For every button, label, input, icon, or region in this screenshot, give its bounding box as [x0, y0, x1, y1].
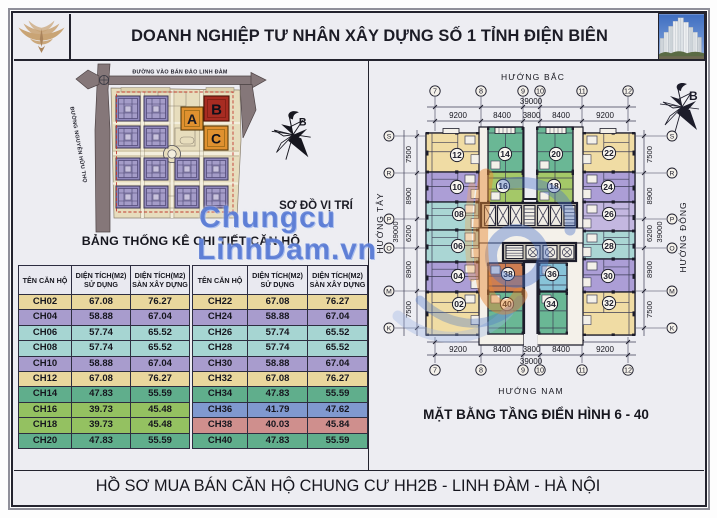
svg-text:7500: 7500 [645, 301, 654, 318]
svg-text:P: P [670, 216, 675, 223]
svg-text:8: 8 [479, 87, 483, 96]
svg-text:9: 9 [521, 87, 525, 96]
svg-text:6200: 6200 [645, 225, 654, 242]
svg-text:12: 12 [624, 87, 632, 96]
svg-text:3800: 3800 [523, 111, 541, 120]
svg-text:S: S [670, 133, 675, 140]
svg-text:26: 26 [604, 209, 614, 219]
svg-text:ĐƯỜNG VÀO BÁN ĐẢO LINH ĐÀM: ĐƯỜNG VÀO BÁN ĐẢO LINH ĐÀM [132, 68, 227, 76]
svg-text:10: 10 [536, 366, 544, 375]
svg-text:8900: 8900 [645, 188, 654, 205]
svg-text:A: A [187, 111, 197, 127]
svg-text:K: K [670, 325, 675, 332]
svg-text:8: 8 [479, 366, 483, 375]
svg-text:B: B [211, 102, 222, 119]
svg-text:HƯỚNG ĐÔNG: HƯỚNG ĐÔNG [678, 201, 688, 272]
svg-text:O: O [669, 245, 674, 252]
svg-text:20: 20 [551, 149, 561, 159]
svg-text:ĐƯỜNG NGUYỄN HỮU THỌ: ĐƯỜNG NGUYỄN HỮU THỌ [68, 106, 89, 183]
svg-text:HƯỚNG NAM: HƯỚNG NAM [498, 386, 564, 396]
svg-text:8400: 8400 [552, 111, 570, 120]
svg-text:7500: 7500 [645, 146, 654, 163]
svg-text:B: B [689, 89, 698, 103]
svg-text:7: 7 [433, 366, 437, 375]
svg-text:12: 12 [452, 150, 462, 160]
svg-text:8400: 8400 [493, 111, 511, 120]
svg-text:9: 9 [521, 366, 525, 375]
svg-text:12: 12 [624, 366, 632, 375]
svg-text:24: 24 [603, 182, 613, 192]
svg-text:8900: 8900 [645, 261, 654, 278]
svg-text:30: 30 [603, 271, 613, 281]
svg-text:9200: 9200 [449, 111, 467, 120]
svg-text:32: 32 [604, 298, 614, 308]
svg-text:MẶT BẰNG TẦNG ĐIỂN HÌNH 6 - 40: MẶT BẰNG TẦNG ĐIỂN HÌNH 6 - 40 [423, 407, 649, 422]
svg-text:10: 10 [536, 87, 544, 96]
svg-text:11: 11 [578, 87, 585, 96]
svg-text:9200: 9200 [596, 111, 614, 120]
svg-text:39000: 39000 [520, 97, 543, 106]
svg-text:7: 7 [433, 87, 437, 96]
svg-text:22: 22 [604, 148, 614, 158]
svg-text:28: 28 [604, 241, 614, 251]
svg-text:9200: 9200 [596, 345, 614, 354]
svg-text:C: C [211, 131, 221, 147]
svg-text:M: M [669, 288, 675, 295]
svg-text:14: 14 [500, 149, 510, 159]
svg-text:HƯỚNG BẮC: HƯỚNG BẮC [501, 72, 565, 82]
svg-text:B: B [299, 116, 307, 128]
svg-text:R: R [670, 170, 675, 177]
svg-text:S: S [387, 133, 392, 140]
svg-text:11: 11 [578, 366, 585, 375]
svg-text:39000: 39000 [655, 221, 664, 242]
